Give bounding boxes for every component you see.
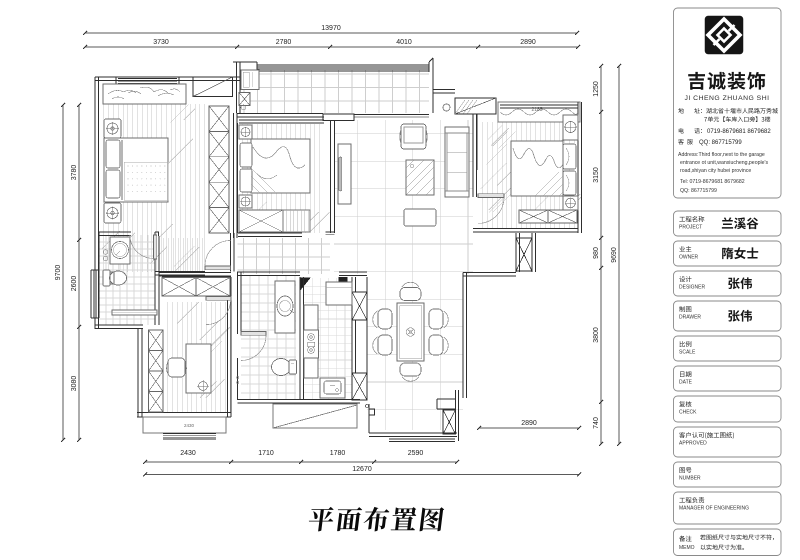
svg-text:3730: 3730: [153, 39, 169, 46]
svg-text:JI CHENG ZHUANG SHI: JI CHENG ZHUANG SHI: [684, 95, 769, 102]
svg-text:2430: 2430: [184, 423, 195, 428]
svg-text:road,shiyan city hubei provinc: road,shiyan city hubei province: [680, 168, 751, 174]
svg-text:1710: 1710: [258, 450, 274, 457]
svg-text:2430: 2430: [180, 450, 196, 457]
svg-text:MANAGER OF ENGINEERING: MANAGER OF ENGINEERING: [679, 506, 749, 512]
svg-text:OWNER: OWNER: [679, 255, 699, 261]
svg-text:2890: 2890: [520, 39, 536, 46]
svg-text:3080: 3080: [71, 376, 78, 392]
svg-text:3800: 3800: [593, 327, 600, 343]
svg-text:QQ: 867715799: QQ: 867715799: [680, 188, 717, 194]
svg-text:Tel: 0719-8679681 8679682: Tel: 0719-8679681 8679682: [680, 179, 745, 185]
svg-text:9700: 9700: [55, 265, 62, 281]
svg-text:PROJECT: PROJECT: [679, 225, 702, 231]
svg-text:2590: 2590: [408, 450, 424, 457]
svg-text:DATE: DATE: [679, 380, 693, 386]
svg-text:980: 980: [593, 247, 600, 259]
svg-text:CHECK: CHECK: [679, 410, 697, 416]
svg-text:2890: 2890: [521, 420, 537, 427]
svg-text:MEMO: MEMO: [679, 545, 695, 551]
svg-text:12670: 12670: [352, 466, 372, 473]
svg-text:2600: 2600: [71, 276, 78, 292]
svg-text:3150: 3150: [593, 167, 600, 183]
svg-text:SCALE: SCALE: [679, 350, 696, 356]
svg-text:APPROVED: APPROVED: [679, 441, 707, 447]
svg-text:740: 740: [593, 417, 600, 429]
svg-text:DESIGNER: DESIGNER: [679, 285, 706, 291]
svg-text:2780: 2780: [276, 39, 292, 46]
svg-text:DRAWER: DRAWER: [679, 315, 701, 321]
svg-text:2185: 2185: [531, 107, 542, 113]
svg-text:4010: 4010: [396, 39, 412, 46]
svg-text:NUMBER: NUMBER: [679, 476, 701, 482]
svg-text:1780: 1780: [330, 450, 346, 457]
svg-text:3780: 3780: [71, 165, 78, 181]
svg-text:QQ: 867715799: QQ: 867715799: [699, 140, 742, 146]
svg-text:Address:Third floor,next to th: Address:Third floor,next to the garage: [678, 152, 765, 158]
svg-text:0719-8679681 8679682: 0719-8679681 8679682: [707, 129, 771, 135]
svg-text:9690: 9690: [611, 247, 618, 263]
svg-text:entrance ot unit,wanxiucheng,p: entrance ot unit,wanxiucheng,people's: [680, 160, 768, 166]
svg-text:1250: 1250: [593, 81, 600, 97]
svg-text:13970: 13970: [321, 25, 341, 32]
